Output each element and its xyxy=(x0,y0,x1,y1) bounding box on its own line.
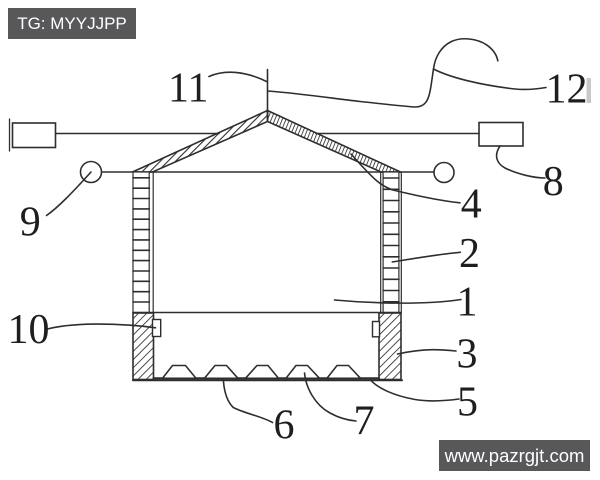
svg-text:5: 5 xyxy=(457,380,478,426)
svg-text:1: 1 xyxy=(457,280,478,326)
svg-text:6: 6 xyxy=(274,403,295,449)
svg-text:4: 4 xyxy=(461,182,482,228)
svg-text:7: 7 xyxy=(354,399,375,445)
svg-text:9: 9 xyxy=(20,200,41,246)
svg-text:8: 8 xyxy=(543,159,564,205)
svg-text:10: 10 xyxy=(8,307,50,353)
svg-text:12: 12 xyxy=(546,67,588,113)
svg-text:11: 11 xyxy=(168,66,208,112)
svg-text:3: 3 xyxy=(457,332,478,378)
svg-text:2: 2 xyxy=(459,231,480,277)
